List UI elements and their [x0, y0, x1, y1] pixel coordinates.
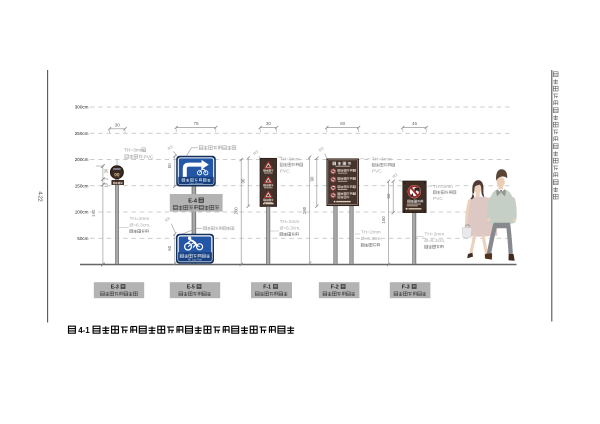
- svg-text:Ø=6.3cm,: Ø=6.3cm,: [130, 222, 151, 228]
- svg-text:TH=3mm: TH=3mm: [433, 184, 453, 190]
- svg-text:R3: R3: [317, 145, 325, 153]
- svg-text:30: 30: [266, 121, 272, 126]
- svg-text:E-3: E-3: [111, 285, 119, 291]
- svg-text:30: 30: [104, 168, 109, 173]
- svg-text:60: 60: [340, 121, 346, 126]
- svg-text:TH=2mm: TH=2mm: [280, 219, 300, 225]
- svg-text:R3: R3: [164, 215, 172, 223]
- svg-text:100cm: 100cm: [75, 210, 89, 215]
- svg-text:Cycle Bikeway: Cycle Bikeway: [189, 183, 204, 185]
- svg-text:TH=2mm: TH=2mm: [130, 216, 150, 222]
- svg-text:10: 10: [103, 182, 108, 187]
- svg-text:50cm: 50cm: [77, 236, 88, 241]
- svg-text:60: 60: [167, 245, 172, 250]
- svg-text:E-4: E-4: [188, 198, 198, 204]
- svg-text:Mt. Liyu Trail: Mt. Liyu Trail: [188, 259, 202, 262]
- svg-text:300cm: 300cm: [75, 105, 89, 110]
- svg-text:PVC: PVC: [144, 154, 154, 160]
- svg-text:TH=2mm: TH=2mm: [361, 230, 381, 236]
- svg-text:280: 280: [302, 206, 307, 214]
- svg-text:TH=3mm: TH=3mm: [280, 156, 300, 162]
- svg-text:75: 75: [193, 121, 199, 126]
- svg-text:PVC: PVC: [372, 169, 382, 175]
- svg-text:Ø=6.3cm,: Ø=6.3cm,: [280, 225, 301, 231]
- svg-text:192: 192: [91, 209, 96, 217]
- svg-text:PVC: PVC: [433, 196, 443, 202]
- svg-text:4-22: 4-22: [37, 191, 43, 201]
- svg-text:150cm: 150cm: [75, 183, 89, 188]
- svg-text:4-1: 4-1: [78, 326, 90, 335]
- svg-text:R3: R3: [166, 144, 174, 152]
- svg-text:F-2: F-2: [331, 285, 339, 291]
- svg-text:R3: R3: [252, 149, 260, 157]
- svg-text:45: 45: [412, 121, 418, 126]
- svg-text:PVC: PVC: [280, 169, 290, 175]
- svg-text:200cm: 200cm: [75, 157, 89, 162]
- svg-text:TH=3mm: TH=3mm: [372, 157, 392, 163]
- svg-text:Ø=6.3cm,: Ø=6.3cm,: [424, 238, 445, 244]
- svg-text:F-1: F-1: [263, 285, 271, 291]
- svg-text:F-3: F-3: [402, 285, 410, 291]
- svg-text:60: 60: [167, 163, 172, 168]
- svg-text:E-5: E-5: [187, 285, 195, 291]
- svg-text:Ø=6.3cm,: Ø=6.3cm,: [361, 236, 382, 242]
- svg-text:60: 60: [386, 193, 391, 198]
- svg-text:R3: R3: [391, 172, 399, 180]
- svg-text:TH=2mm: TH=2mm: [424, 231, 444, 237]
- svg-text:160: 160: [381, 216, 386, 224]
- svg-text:30: 30: [115, 122, 121, 127]
- svg-text:250cm: 250cm: [75, 131, 89, 136]
- svg-text:90: 90: [309, 176, 314, 181]
- svg-text:200: 200: [233, 207, 238, 215]
